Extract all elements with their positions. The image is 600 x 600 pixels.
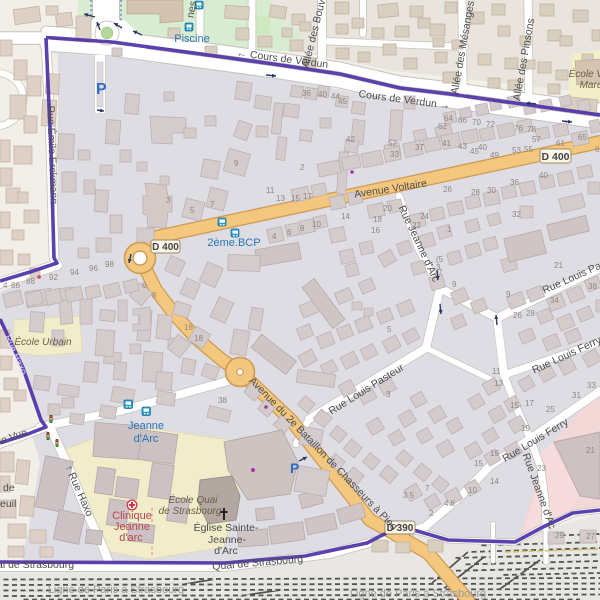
- svg-text:76: 76: [514, 124, 523, 133]
- svg-text:14: 14: [490, 477, 499, 486]
- svg-text:40: 40: [539, 171, 548, 180]
- svg-text:3 5: 3 5: [403, 491, 415, 500]
- svg-text:15: 15: [510, 401, 519, 410]
- svg-text:65: 65: [595, 145, 600, 154]
- svg-text:29: 29: [555, 531, 564, 540]
- svg-text:57: 57: [532, 135, 541, 144]
- svg-text:(5: (5: [436, 255, 444, 264]
- svg-text:D 400: D 400: [541, 151, 569, 163]
- svg-text:de Strasbourg: de Strasbourg: [159, 506, 222, 517]
- svg-text:61: 61: [556, 139, 565, 148]
- svg-text:32: 32: [512, 210, 521, 219]
- svg-text:92: 92: [49, 273, 58, 282]
- svg-text:École Vil: École Vil: [569, 67, 600, 80]
- svg-text:1: 1: [447, 225, 452, 234]
- svg-text:7: 7: [210, 200, 215, 209]
- svg-text:Église Sainte-: Église Sainte-: [194, 521, 259, 534]
- svg-text:7: 7: [425, 484, 430, 493]
- svg-text:17: 17: [303, 192, 312, 201]
- svg-text:66: 66: [458, 116, 467, 125]
- svg-text:96: 96: [89, 264, 98, 273]
- svg-text:9: 9: [234, 159, 239, 168]
- svg-text:6: 6: [142, 281, 147, 290]
- svg-text:22: 22: [412, 221, 421, 230]
- svg-text:94: 94: [70, 268, 79, 277]
- svg-text:7: 7: [438, 268, 443, 277]
- svg-text:28: 28: [471, 188, 480, 197]
- svg-text:École Quai: École Quai: [169, 493, 219, 506]
- svg-text:28: 28: [526, 309, 535, 318]
- svg-text:30: 30: [487, 186, 496, 195]
- svg-text:33: 33: [587, 381, 596, 390]
- svg-text:15: 15: [474, 459, 483, 468]
- svg-text:Ligne de Paris à Strasbourg: Ligne de Paris à Strasbourg: [48, 584, 184, 596]
- svg-text:8: 8: [300, 224, 305, 233]
- svg-text:2: 2: [429, 509, 434, 518]
- svg-text:13: 13: [276, 194, 285, 203]
- svg-text:33: 33: [390, 150, 399, 159]
- svg-text:70: 70: [472, 118, 481, 127]
- svg-text:17: 17: [525, 399, 534, 408]
- svg-text:14: 14: [341, 212, 350, 221]
- svg-text:6: 6: [287, 228, 292, 237]
- svg-text:10: 10: [312, 220, 321, 229]
- svg-text:21: 21: [586, 446, 595, 455]
- svg-text:43: 43: [458, 142, 467, 151]
- svg-text:16: 16: [371, 226, 380, 235]
- svg-text:5: 5: [387, 325, 392, 334]
- svg-text:Jeanne: Jeanne: [128, 420, 164, 432]
- svg-text:École Urbain: École Urbain: [14, 335, 72, 348]
- svg-text:26: 26: [443, 185, 452, 194]
- svg-text:40: 40: [478, 143, 487, 152]
- svg-text:36: 36: [302, 89, 311, 98]
- svg-text:de: de: [3, 482, 15, 494]
- svg-text:9: 9: [452, 280, 457, 289]
- svg-text:3: 3: [386, 390, 391, 399]
- svg-text:d'Arc: d'Arc: [214, 545, 238, 557]
- svg-text:Ligne de Paris à Strasbourg: Ligne de Paris à Strasbourg: [350, 588, 486, 600]
- svg-text:d'arc: d'arc: [119, 532, 143, 544]
- svg-text:37: 37: [415, 143, 424, 152]
- svg-text:4: 4: [3, 281, 8, 290]
- svg-text:4 6: 4 6: [444, 499, 456, 508]
- svg-text:98: 98: [105, 260, 114, 269]
- svg-text:euil: euil: [0, 498, 16, 510]
- svg-text:64: 64: [444, 114, 453, 123]
- svg-text:38: 38: [218, 396, 227, 405]
- svg-text:20: 20: [383, 204, 392, 213]
- svg-text:13: 13: [494, 379, 503, 388]
- svg-text:55: 55: [524, 145, 533, 154]
- svg-text:4: 4: [272, 232, 277, 241]
- svg-text:21: 21: [554, 261, 563, 270]
- svg-text:11: 11: [492, 367, 501, 376]
- svg-text:ai de Strasbourg: ai de Strasbourg: [0, 559, 74, 571]
- svg-text:53: 53: [512, 146, 521, 155]
- svg-text:31: 31: [572, 391, 581, 400]
- svg-text:10: 10: [468, 486, 477, 495]
- svg-text:36: 36: [510, 178, 519, 187]
- svg-text:11: 11: [266, 186, 275, 195]
- svg-text:5: 5: [190, 206, 195, 215]
- svg-text:18: 18: [194, 334, 203, 343]
- svg-text:23: 23: [537, 464, 546, 473]
- svg-text:88: 88: [26, 277, 35, 286]
- svg-text:40: 40: [318, 90, 327, 99]
- svg-text:P: P: [96, 81, 107, 98]
- svg-text:Piscine: Piscine: [174, 33, 209, 45]
- svg-text:16: 16: [184, 323, 193, 332]
- svg-text:24: 24: [420, 212, 429, 221]
- svg-text:86: 86: [11, 281, 20, 290]
- svg-text:15: 15: [291, 194, 300, 203]
- svg-text:3: 3: [166, 196, 171, 205]
- svg-text:52: 52: [388, 139, 397, 148]
- svg-text:65: 65: [578, 133, 587, 142]
- svg-text:8: 8: [152, 291, 157, 300]
- svg-text:78: 78: [527, 125, 536, 134]
- svg-text:49: 49: [490, 151, 499, 160]
- svg-text:25: 25: [546, 405, 555, 414]
- svg-text:19: 19: [490, 449, 499, 458]
- svg-text:18: 18: [373, 215, 382, 224]
- svg-text:2: 2: [300, 163, 305, 172]
- svg-text:19: 19: [521, 424, 530, 433]
- svg-text:26: 26: [513, 311, 522, 320]
- svg-text:42: 42: [346, 135, 355, 144]
- svg-text:2ème.BCP: 2ème.BCP: [207, 237, 260, 249]
- svg-text:45: 45: [338, 97, 347, 106]
- svg-text:38: 38: [588, 282, 597, 291]
- svg-text:72: 72: [486, 120, 495, 129]
- svg-text:27: 27: [586, 532, 595, 541]
- svg-text:D 400: D 400: [152, 242, 179, 253]
- svg-text:41: 41: [442, 139, 451, 148]
- svg-text:Mare: Mare: [580, 80, 600, 91]
- svg-text:P: P: [290, 460, 299, 476]
- svg-text:d'Arc: d'Arc: [134, 433, 159, 445]
- svg-text:34: 34: [550, 296, 559, 305]
- svg-text:62: 62: [438, 122, 447, 131]
- svg-text:9: 9: [506, 290, 511, 299]
